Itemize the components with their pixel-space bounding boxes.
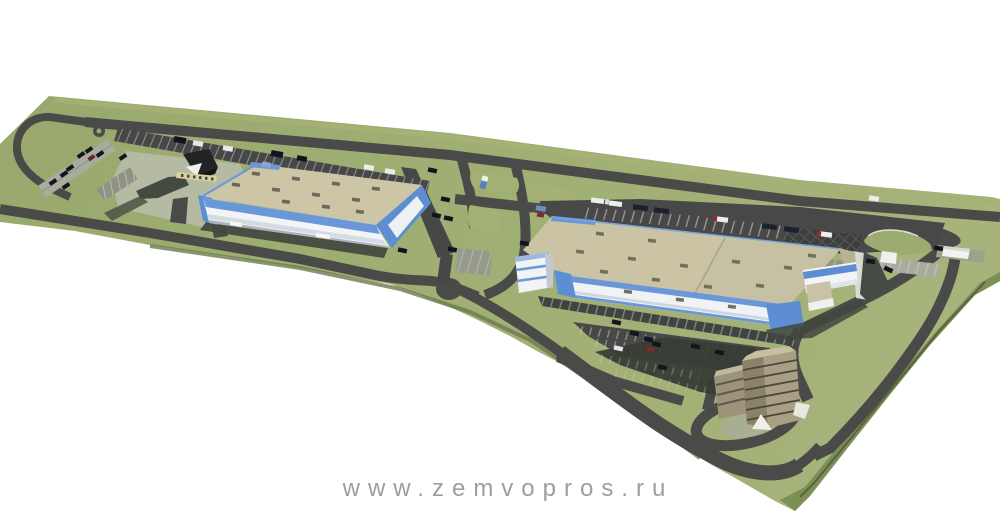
svg-text:www.zemvopros.ru: www.zemvopros.ru (342, 475, 674, 502)
